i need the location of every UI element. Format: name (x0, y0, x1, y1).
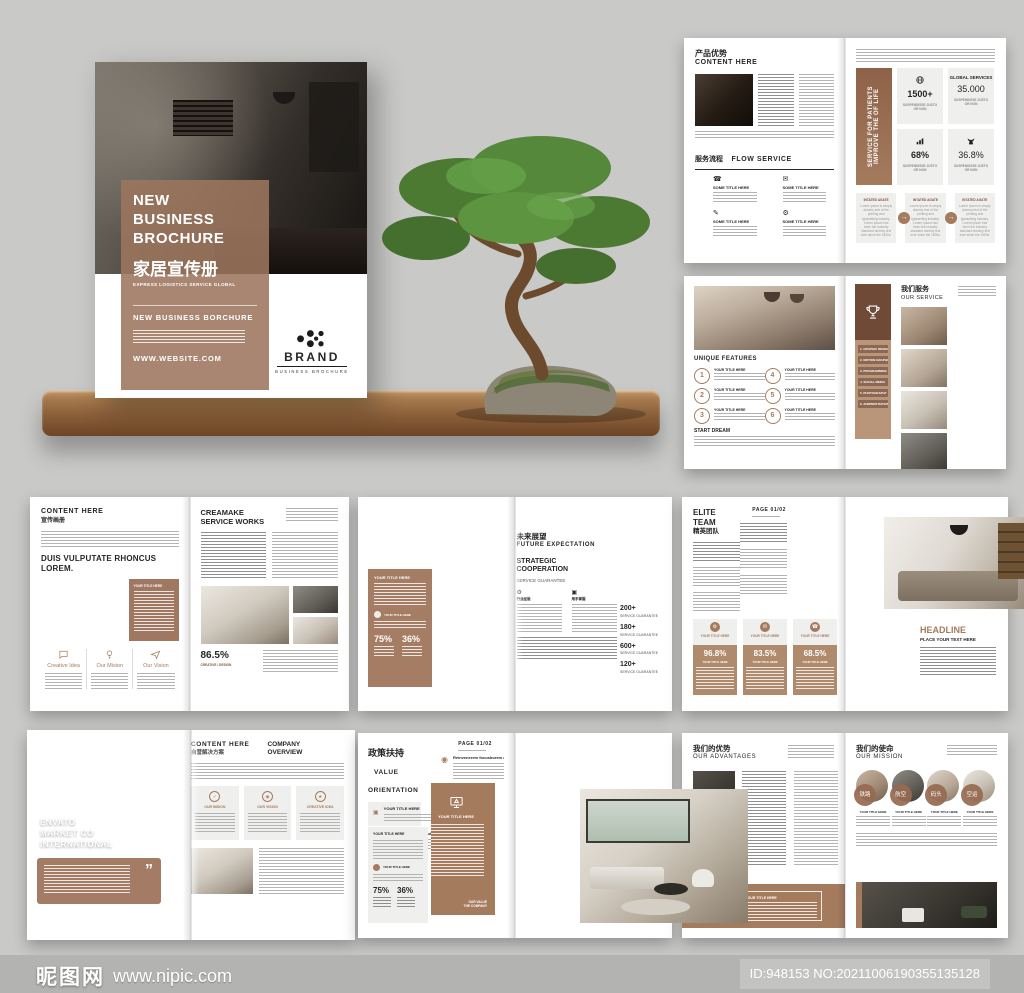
pendant-lamp (273, 92, 295, 104)
text-placeholder (431, 824, 484, 876)
feature-title: YOUR TITLE HERE (785, 388, 836, 393)
headline-block: HEADLINE PLACE YOUR TEXT HERE (920, 625, 996, 677)
decor (922, 139, 924, 145)
stat-card: GLOBAL SERVICES 35.000 SUSPENDISSE JUSTO… (948, 68, 994, 124)
spread-value-orientation: 政策扶持 VALUE ORIENTATION ▣ YOUR TITLE HERE… (358, 733, 672, 938)
elite-card: ☎ YOUR TITLE HERE 68.5% YOUR TITLE HERE (793, 619, 837, 695)
text-placeholder (783, 226, 827, 238)
decor (109, 656, 111, 659)
decor: 铁路 YOUR TITLE HERE (856, 770, 890, 828)
page-number: PAGE 01/02 (752, 507, 786, 519)
number-badge: 4 (765, 368, 781, 384)
text-placeholder (713, 226, 757, 238)
service-menu-item: 6. ADMINISTRATION (858, 400, 888, 408)
bedroom-photo (856, 882, 997, 928)
text-placeholder (693, 567, 740, 587)
decor (307, 330, 314, 337)
service-en-title: OUR SERVICE (901, 295, 943, 302)
text-placeholder (453, 763, 504, 779)
paper-plane-icon (150, 649, 161, 660)
quote-box: ” (37, 858, 161, 904)
lead-icon-block: ◉ Reinvenerem focusborem aut aut (441, 755, 504, 779)
decor: 1500+ SUSPENDISSE JUSTO OR NON GLOBAL SE… (897, 68, 995, 185)
side-table (902, 908, 924, 922)
agate-card: INTATED AGATE Lorem Ipsum is simply dumm… (955, 193, 995, 243)
text-placeholder (259, 848, 344, 894)
nipic-site-name: 昵图网 (36, 961, 105, 991)
stat-label: SERVICE GUARANTEE (620, 651, 662, 655)
section-en-title: CONTENT HERE (695, 59, 834, 68)
decor (446, 158, 526, 194)
sofa-photo (191, 848, 253, 894)
content-cn-title: 自营解决方案 (191, 750, 249, 757)
decor (695, 74, 834, 126)
text-placeholder (373, 840, 423, 860)
card-title: INTATED AGATE (909, 198, 941, 202)
text-placeholder (397, 897, 415, 907)
decor: 1. GRAPHIC DESIGN 2. MOTION GRAPHIC 3. P… (855, 340, 891, 439)
service-menu-item: 2. MOTION GRAPHIC (858, 356, 888, 364)
decor: 75% 36% (373, 886, 423, 908)
flow-item-title: SOME TITLE HERE (783, 185, 827, 190)
stat-label: SERVICE GUARANTEE (620, 670, 662, 674)
text-placeholder (134, 591, 174, 631)
pillow (961, 906, 987, 918)
text-placeholder (374, 646, 394, 656)
text-placeholder (374, 621, 426, 629)
room-photo (293, 617, 339, 644)
decor (869, 306, 877, 314)
globe-icon (915, 75, 925, 85)
elite-card: ✉ YOUR TITLE HERE 83.5% YOUR TITLE HERE (743, 619, 787, 695)
decor: THE COMPANY (464, 904, 487, 908)
number-badge: 5 (765, 388, 781, 404)
dot-icon (374, 611, 381, 618)
decor: Creative Idea Our Mision Our Vision (41, 649, 179, 688)
decor: 产品优势 CONTENT HERE 服务流程 FLOW SERVICE ☎ SO… (684, 38, 845, 263)
decor (318, 341, 323, 346)
decor: CONTENT HERE 自营解决方案 COMPANYOVERVIEW (191, 741, 344, 757)
feature-title: YOUR TITLE HERE (714, 388, 765, 393)
decor (191, 848, 344, 894)
value-cn-title: 政策扶持 (368, 748, 404, 758)
decor: 铁路 YOUR TITLE HERE 航空 YOUR TITLE HERE 码头… (856, 770, 997, 828)
livingroom-photo2 (201, 586, 289, 644)
foliage (382, 136, 650, 284)
text-placeholder (856, 816, 890, 828)
decor (536, 248, 616, 284)
decor (297, 330, 324, 347)
col-label: 行业经验 (517, 597, 562, 602)
decor: YOUR TITLE HERE (384, 806, 431, 821)
strategic-title: STRATEGICCOOPERATION (517, 558, 662, 576)
stat-value: 120+ (620, 661, 662, 670)
stat-pre: GLOBAL SERVICES (948, 75, 994, 81)
decor: INTATED AGATE Lorem Ipsum is simply dumm… (856, 193, 995, 243)
decor: 5 YOUR TITLE HERE (765, 388, 836, 404)
panel-title: YOUR TITLE HERE (374, 575, 426, 580)
decor (901, 307, 996, 469)
text-placeholder (263, 650, 339, 674)
decor: ⚙ 行业经验 ▣ 用手掌握 (517, 590, 617, 633)
decor: ENVATOMARKET COINTERNATIONAL ” (27, 730, 180, 940)
spread-company-overview: ENVATOMARKET COINTERNATIONAL ” CONTENT H… (27, 730, 355, 940)
decor: Creative Idea (41, 649, 87, 688)
elite-value: 96.8% (696, 649, 734, 659)
decor: Our Mision (87, 649, 133, 688)
flow-item-title: SOME TITLE HERE (713, 185, 757, 190)
brand-subtitle: BUSINESS BROCHURE (273, 369, 351, 374)
decor: Reinvenerem focusborem aut aut (453, 755, 504, 779)
service-banner: SERVICE FOR PATIENTS IMPROVE THE OF LIFE (856, 68, 892, 185)
text-placeholder (799, 74, 835, 126)
lightbulb-icon: ★ (315, 791, 326, 802)
stat-36: 36% (402, 634, 422, 644)
text-placeholder (785, 413, 836, 422)
text-placeholder (788, 745, 834, 759)
check-icon: ✓ (209, 791, 220, 802)
card-body: Lorem Ipsum is simply dummy text of the … (909, 204, 941, 237)
decor: 36% (397, 886, 415, 908)
text-placeholder (947, 745, 997, 757)
decor: 1 YOUR TITLE HERE (694, 368, 765, 384)
decor: YOUR TITLE HERE (714, 408, 765, 424)
divider (277, 366, 347, 367)
decor: PAGE 01/02 ◉ Reinvenerem focusborem aut … (431, 733, 504, 938)
text-placeholder (572, 604, 617, 632)
decor: 我们的使命 OUR MISSION 铁路 YOUR TITLE HERE 航空 … (845, 733, 1008, 938)
text-placeholder (856, 833, 997, 847)
decor: YOUR TITLE HERE (374, 611, 426, 618)
cover-cn-title: 家居宣传册 (133, 255, 257, 280)
decor: 我们服务 OUR SERVICE (901, 286, 943, 302)
elite-value: 68.5% (796, 649, 834, 659)
decor: ☎ YOUR TITLE HERE (793, 619, 837, 645)
text-placeholder (785, 373, 836, 382)
value-panel: YOUR TITLE HERE YOUR TITLE HERE 75% 36% (368, 827, 428, 923)
decor (917, 142, 919, 145)
cover-title-line: BUSINESS (133, 211, 257, 230)
card-title: CREATIVE IDEA (300, 805, 340, 810)
text-placeholder (714, 373, 765, 382)
pen-icon: ✎ (713, 210, 757, 219)
card-body: Lorem Ipsum is simply dummy text of the … (860, 204, 892, 237)
gear-icon: ⚙ (710, 622, 720, 632)
gear-icon: ⚙ (783, 210, 827, 219)
service-guarantee-sub: SERVICE GUARANTEE (517, 578, 662, 584)
text-placeholder (458, 750, 486, 753)
decor: STRATEGIC (517, 558, 662, 567)
decor: 3 YOUR TITLE HERE (694, 408, 765, 424)
bar-title: YOUR TITLE HERE (384, 806, 431, 811)
decor: YOUR TITLE HERE (785, 368, 836, 384)
dot-icon (373, 864, 380, 871)
decor (297, 335, 304, 342)
decor: MARKET CO (40, 829, 113, 840)
dining-photo (694, 286, 835, 350)
person-icon: ◉ (262, 791, 273, 802)
trophy-icon (864, 303, 882, 321)
phone-icon: ☎ (713, 176, 757, 185)
decor: 96.8% YOUR TITLE HERE (693, 645, 737, 695)
decor (837, 497, 853, 711)
decor: 政策扶持 VALUE ORIENTATION (368, 743, 421, 797)
decor (454, 799, 459, 807)
card-title: YOUR TITLE HERE (793, 634, 837, 638)
decor: 2 YOUR TITLE HERE (694, 388, 765, 404)
company-overview-title: COMPANYOVERVIEW (267, 741, 302, 757)
decor: ✓ OUR MISION ◉ OUR VISION ★ CREATIVE IDE… (191, 786, 344, 840)
card-title: YOUR TITLE HERE (743, 634, 787, 638)
decor: ⚙ SOME TITLE HERE (765, 210, 835, 238)
decor: CREAMAKE (201, 508, 265, 517)
grid-icon: ▣ (373, 810, 379, 818)
section-cn-title: 产品优势 (695, 49, 834, 59)
circle-title: YOUR TITLE HERE (856, 810, 890, 814)
overlay-title: YOUR TITLE HERE (134, 584, 174, 588)
pendant-lamp (950, 525, 968, 535)
circle-title: YOUR TITLE HERE (927, 810, 961, 814)
stat-card: 36.8% SUSPENDISSE JUSTO OR NON (948, 129, 994, 185)
decor (919, 140, 921, 144)
circle-title: YOUR TITLE HERE (963, 810, 997, 814)
decor: YOUR TITLE HERE (373, 864, 423, 871)
brochure-cover: NEW BUSINESS BROCHURE 家居宣传册 EXPRESS LOGI… (95, 62, 367, 398)
decor: YOUR TITLE HERE (785, 408, 836, 424)
card-title: INTATED AGATE (860, 198, 892, 202)
decor: 航空 YOUR TITLE HERE (892, 770, 926, 828)
card-title: YOUR TITLE HERE (693, 634, 737, 638)
text-placeholder (794, 771, 838, 867)
panorama-livingroom-photo (580, 789, 748, 923)
cover-tagline: EXPRESS LOGISTICS SERVICE GLOBAL (133, 282, 257, 287)
text-placeholder (963, 816, 997, 828)
divider (133, 305, 257, 306)
decor (307, 340, 314, 347)
start-dream-title: START DREAM (694, 428, 835, 435)
column-title: Our Vision (137, 663, 174, 670)
decor: SERVICE WORKS (201, 517, 265, 526)
decor (293, 586, 339, 644)
feature-title: YOUR TITLE HERE (785, 368, 836, 373)
decor: 83.5% YOUR TITLE HERE (743, 645, 787, 695)
feature-title: YOUR TITLE HERE (714, 368, 765, 373)
watermark-bar: 昵图网 www.nipic.com ID:948153 NO:202110061… (0, 955, 1024, 993)
decor: 政策扶持 VALUE ORIENTATION ▣ YOUR TITLE HERE… (358, 733, 431, 938)
stat-caption: SUSPENDISSE JUSTO OR NON (897, 164, 943, 172)
guarantee-stats: 200+SERVICE GUARANTEE 180+SERVICE GUARAN… (620, 605, 662, 674)
text-placeholder (856, 49, 995, 62)
text-placeholder (402, 646, 422, 656)
decor (870, 314, 876, 319)
text-placeholder (752, 516, 780, 519)
bonsai-tree-image (366, 126, 666, 426)
decor: 36% (402, 634, 422, 656)
decor (855, 284, 891, 340)
flow-en-title: FLOW SERVICE (731, 156, 791, 163)
text-placeholder (694, 436, 835, 446)
card-title: OUR VISION (248, 805, 288, 810)
text-placeholder (746, 667, 784, 691)
headline-title: HEADLINE (920, 625, 996, 636)
decor: YOUR TITLE HERE (714, 368, 765, 384)
spread-our-service: UNIQUE FEATURES 1 YOUR TITLE HERE 4 YOUR… (684, 276, 1006, 469)
text-placeholder (740, 523, 787, 543)
card-sub: YOUR TITLE HERE (696, 660, 734, 664)
card-sub: YOUR TITLE HERE (796, 660, 834, 664)
spread-future-expectation: YOUR TITLE HERE YOUR TITLE HERE 75% 36% … (358, 497, 672, 711)
text-placeholder (714, 413, 765, 422)
service-menu-item: 4. SOCIAL MEDIA (858, 378, 888, 386)
stat-caption: SUSPENDISSE JUSTO OR NON (948, 98, 994, 106)
decor: ☎ SOME TITLE HERE ✉ SOME TITLE HERE ✎ SO… (695, 176, 834, 238)
stat-value: 200+ (620, 605, 662, 614)
decor: CREAMAKESERVICE WORKS 86.5% CREATIVE / D… (190, 497, 350, 711)
decor: COMPANY (267, 741, 302, 749)
agate-card: INTATED AGATE Lorem Ipsum is simply dumm… (856, 193, 896, 243)
creative-stat-label: CREATIVE / DESIGN (201, 663, 257, 667)
room-thumb (901, 349, 947, 387)
card-body: Lorem Ipsum is simply dummy text of the … (959, 204, 991, 237)
arrow-circle-icon: → (945, 212, 957, 224)
decor: YOUR TITLE HERE (714, 388, 765, 404)
window-blinds (173, 100, 233, 136)
decor: ⚙ 行业经验 (517, 590, 562, 633)
decor: 6 YOUR TITLE HERE (765, 408, 836, 424)
elite-en-title: ELITE TEAM (693, 508, 729, 527)
sofa (590, 867, 664, 889)
decor: 180+SERVICE GUARANTEE (620, 624, 662, 637)
pendant-lamp (764, 292, 780, 302)
stat-label: SERVICE GUARANTEE (620, 614, 662, 618)
future-cn-title: 未来展望 (517, 532, 662, 541)
text-placeholder (696, 667, 734, 691)
photo-overlay-panel: YOUR TITLE HERE (129, 579, 179, 641)
decor: 1 YOUR TITLE HERE 4 YOUR TITLE HERE 2 YO… (694, 368, 835, 424)
service-menu-item: 3. PROGRAMMING (858, 367, 888, 375)
spread-creamake: CONTENT HERE 宣传画册 DUIS VULPUTATE RHONCUS… (30, 497, 349, 711)
elite-cn-title: 精英团队 (693, 528, 729, 536)
monitor-icon (449, 795, 464, 810)
stat-value: 600+ (620, 643, 662, 652)
text-placeholder (927, 816, 961, 828)
card-title: OUR MISION (195, 805, 235, 810)
hero-mockup: NEW BUSINESS BROCHURE 家居宣传册 EXPRESS LOGI… (0, 0, 680, 480)
decor: 86.5% CREATIVE / DESIGN (201, 650, 257, 667)
text-placeholder (373, 897, 391, 907)
future-overlay-panel: YOUR TITLE HERE YOUR TITLE HERE 75% 36% (368, 569, 432, 687)
window-band (586, 799, 690, 843)
stat-caption: SUSPENDISSE JUSTO OR NON (948, 164, 994, 172)
elite-card: ⚙ YOUR TITLE HERE 96.8% YOUR TITLE HERE (693, 619, 737, 695)
decor: YOUR TITLE HERE YOUR TITLE HERE 75% 36% (358, 497, 503, 711)
creative-card: ★ CREATIVE IDEA (296, 786, 344, 840)
text-placeholder (783, 192, 827, 204)
decor: CONTENT HERE 自营解决方案 (191, 741, 249, 757)
cover-title-line: NEW (133, 192, 257, 211)
text-placeholder (693, 542, 740, 562)
stat-value: 180+ (620, 624, 662, 633)
bull-icon (966, 136, 976, 146)
lightbulb-icon (104, 649, 115, 660)
decor: 我们服务 OUR SERVICE (901, 286, 996, 302)
decor (107, 651, 112, 656)
cover-overlay-panel: NEW BUSINESS BROCHURE 家居宣传册 EXPRESS LOGI… (121, 180, 269, 390)
decor: OVERVIEW (267, 749, 302, 757)
chart-icon (915, 136, 925, 146)
circle-title: YOUR TITLE HERE (892, 810, 926, 814)
nipic-url: www.nipic.com (113, 966, 232, 987)
text-placeholder (44, 865, 130, 895)
text-placeholder (517, 637, 617, 659)
decor: COOPERATION (517, 566, 662, 575)
service-cn-title: 我们服务 (901, 286, 943, 295)
headline-sub: PLACE YOUR TEXT HERE (920, 637, 996, 643)
room-thumb (901, 307, 947, 345)
decor: 空运 YOUR TITLE HERE (963, 770, 997, 828)
decor: 200+SERVICE GUARANTEE (620, 605, 662, 618)
brand-logo: BRAND BUSINESS BROCHURE (273, 328, 351, 374)
decor: 75% (373, 886, 391, 908)
flow-cn-title: 服务流程 (695, 156, 723, 163)
decor (152, 652, 160, 659)
decor: 75% (374, 634, 394, 656)
text-placeholder (300, 813, 340, 833)
card-title: INTATED AGATE (959, 198, 991, 202)
person-chart-icon: ◉ (441, 755, 448, 779)
decor (968, 138, 975, 144)
text-placeholder (958, 286, 996, 298)
text-placeholder (920, 647, 996, 677)
stat-value: 1500+ (897, 89, 943, 100)
decor: 120+SERVICE GUARANTEE (620, 661, 662, 674)
service-sidebar: 1. GRAPHIC DESIGN 2. MOTION GRAPHIC 3. P… (855, 284, 891, 444)
text-placeholder (373, 874, 423, 882)
decor: 600+SERVICE GUARANTEE (620, 643, 662, 656)
mail-icon: ✉ (760, 622, 770, 632)
decor: 1. GRAPHIC DESIGN 2. MOTION GRAPHIC 3. P… (845, 276, 1006, 469)
loft-photo (293, 586, 339, 613)
future-en-title: FUTURE EXPECTATION (517, 542, 662, 550)
text-placeholder (137, 673, 174, 689)
features-title: UNIQUE FEATURES (694, 356, 835, 364)
mission-card: ✓ OUR MISION (191, 786, 239, 840)
mail-icon: ✉ (783, 176, 827, 185)
panel-item-title: YOUR TITLE HERE (384, 613, 411, 617)
number-badge: 3 (694, 408, 710, 424)
agate-card: INTATED AGATE Lorem Ipsum is simply dumm… (905, 193, 945, 243)
decor: YOUR TITLE HERE (41, 579, 179, 641)
text-placeholder (740, 549, 787, 569)
text-placeholder (191, 763, 344, 779)
stock-preview-page: { "watermark":{"site":"昵图网","url":"www.n… (0, 0, 1024, 993)
decor: YOUR TITLE HERE (785, 388, 836, 404)
pendant-lamp (790, 294, 804, 303)
panel-item-title: YOUR TITLE HERE (383, 865, 410, 869)
panel-title: YOUR TITLE HERE (373, 832, 423, 837)
feature-title: YOUR TITLE HERE (785, 408, 836, 413)
circle-label: 码头 (925, 784, 947, 806)
sofa-marble-photo (884, 517, 1024, 609)
text-placeholder (248, 813, 288, 833)
circle-label: 航空 (890, 784, 912, 806)
decor: PAGE 01/02 (752, 507, 786, 514)
image-id-badge: ID:948153 NO:20211006190355135128 (740, 959, 990, 989)
decor: CONTENT HERE 自营解决方案 COMPANYOVERVIEW ✓ OU… (180, 730, 355, 940)
stat-value: 36.8% (948, 150, 994, 161)
chalkboard (309, 82, 359, 172)
decor (382, 216, 470, 260)
